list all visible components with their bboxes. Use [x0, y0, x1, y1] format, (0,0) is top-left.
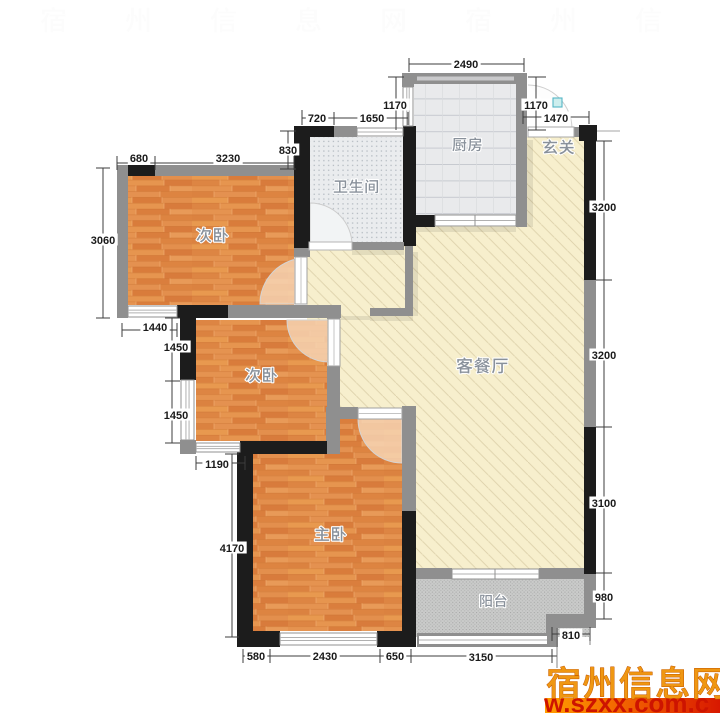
svg-text:3200: 3200: [592, 350, 616, 362]
svg-text:720: 720: [308, 113, 326, 125]
svg-text:1440: 1440: [143, 322, 167, 334]
svg-text:830: 830: [279, 145, 297, 157]
svg-text:1190: 1190: [205, 459, 229, 471]
svg-text:3200: 3200: [592, 202, 616, 214]
svg-text:3060: 3060: [91, 235, 115, 247]
svg-text:980: 980: [595, 592, 613, 604]
svg-text:1450: 1450: [164, 410, 188, 422]
svg-text:2430: 2430: [313, 651, 337, 663]
svg-text:680: 680: [130, 153, 148, 165]
svg-text:3150: 3150: [469, 652, 493, 664]
svg-text:4170: 4170: [220, 543, 244, 555]
svg-text:w.szxx.com.c: w.szxx.com.c: [543, 688, 709, 718]
svg-text:1170: 1170: [383, 100, 407, 112]
svg-text:1470: 1470: [544, 113, 568, 125]
svg-text:1170: 1170: [524, 100, 548, 112]
svg-text:1650: 1650: [360, 113, 384, 125]
svg-text:3230: 3230: [216, 153, 240, 165]
svg-text:810: 810: [562, 630, 580, 642]
svg-text:650: 650: [386, 651, 404, 663]
svg-text:2490: 2490: [454, 59, 478, 71]
svg-text:580: 580: [247, 651, 265, 663]
svg-text:1450: 1450: [164, 342, 188, 354]
svg-text:3100: 3100: [592, 498, 616, 510]
